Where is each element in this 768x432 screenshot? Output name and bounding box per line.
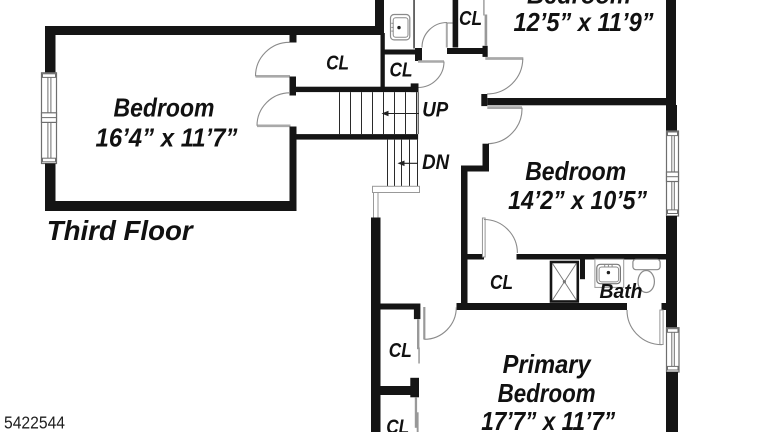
svg-text:5422544: 5422544 (4, 413, 65, 432)
svg-text:CL: CL (490, 272, 513, 294)
svg-text:Bath: Bath (600, 281, 643, 303)
svg-text:CL: CL (326, 52, 349, 74)
svg-text:Bedroom: Bedroom (498, 378, 596, 408)
svg-text:CL: CL (389, 340, 412, 362)
svg-text:CL: CL (459, 8, 482, 30)
svg-text:14’2” x 10’5”: 14’2” x 10’5” (508, 185, 647, 215)
svg-text:CL: CL (390, 60, 413, 82)
svg-text:Primary: Primary (503, 349, 592, 379)
svg-text:12’5” x 11’9”: 12’5” x 11’9” (514, 7, 654, 37)
svg-text:17’7” x 11’7”: 17’7” x 11’7” (481, 406, 615, 432)
svg-text:16’4” x 11’7”: 16’4” x 11’7” (96, 123, 238, 153)
svg-text:DN: DN (422, 151, 450, 174)
svg-text:UP: UP (422, 98, 449, 121)
svg-text:Third Floor: Third Floor (47, 215, 195, 246)
svg-text:Bedroom: Bedroom (114, 92, 215, 122)
svg-text:Bedroom: Bedroom (525, 156, 626, 186)
svg-text:CL: CL (386, 417, 409, 432)
